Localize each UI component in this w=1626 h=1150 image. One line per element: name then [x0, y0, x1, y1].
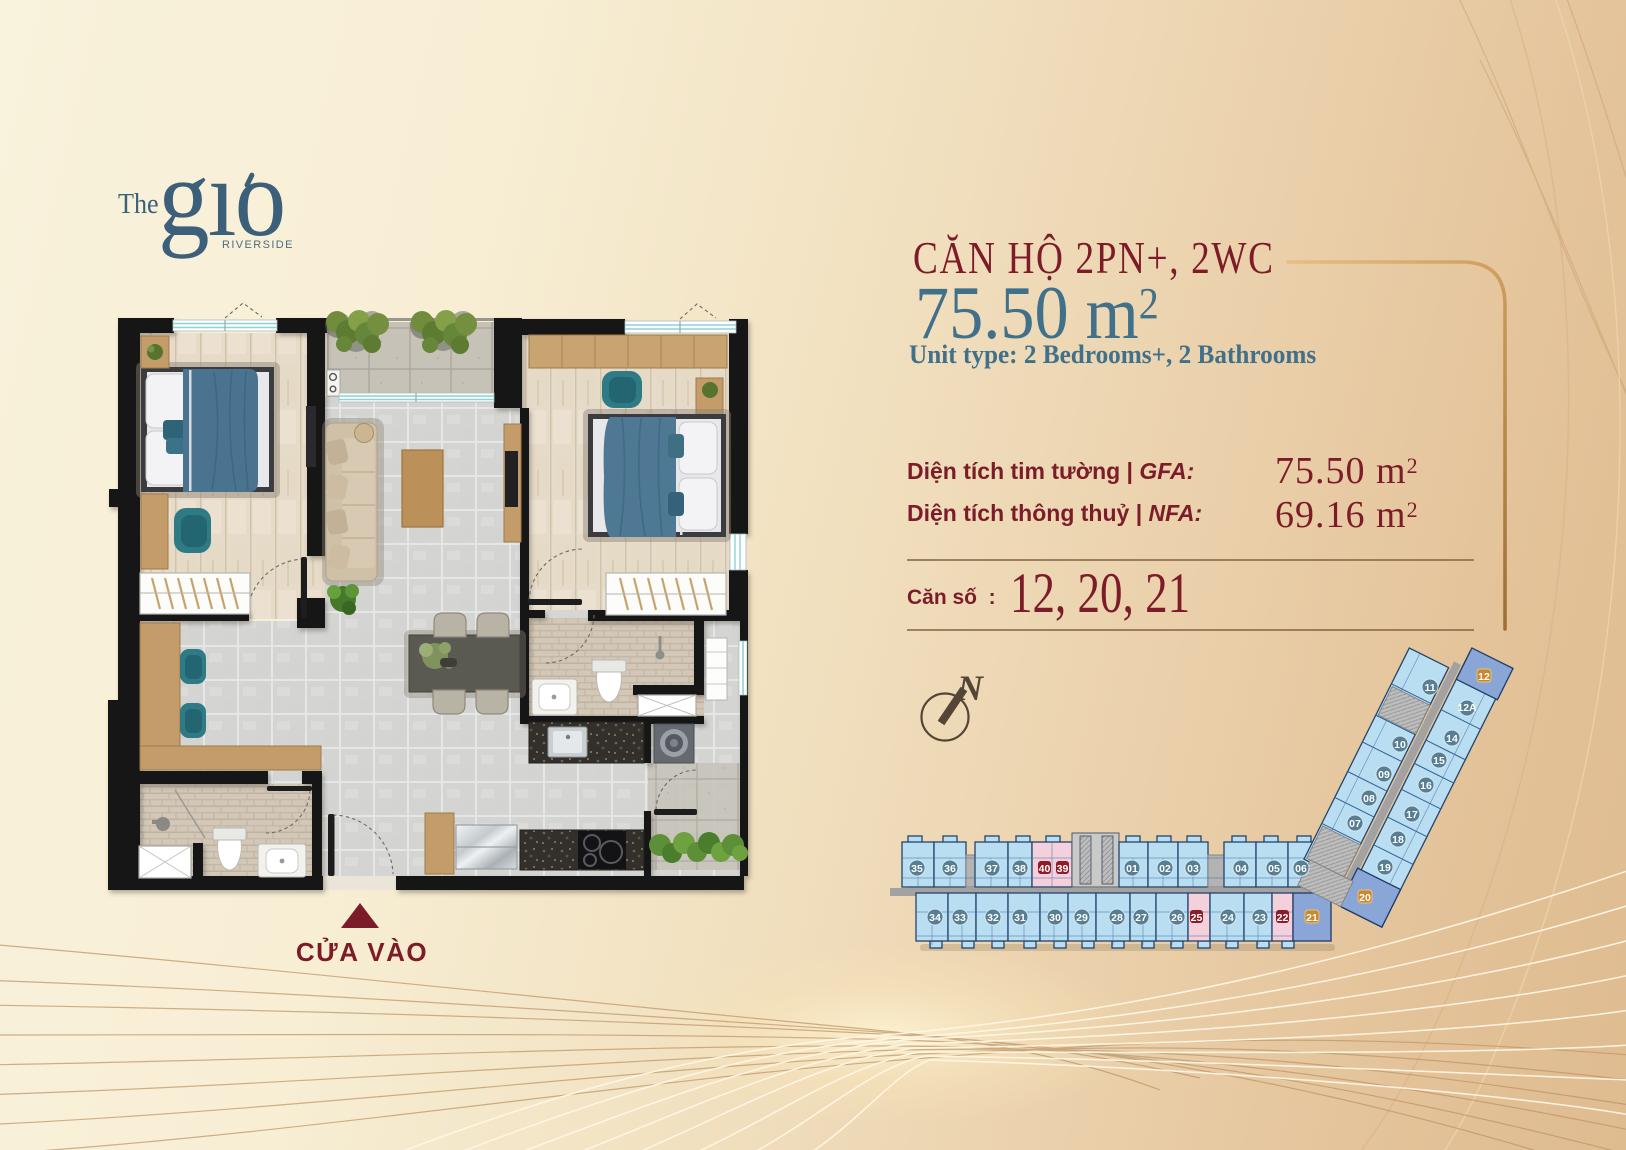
svg-text:27: 27: [1135, 912, 1147, 924]
svg-text:02: 02: [1159, 863, 1171, 875]
svg-text:01: 01: [1126, 863, 1138, 875]
svg-text:38: 38: [1014, 863, 1026, 875]
svg-text:10: 10: [1394, 739, 1406, 751]
svg-text:23: 23: [1254, 912, 1266, 924]
svg-text:09: 09: [1378, 769, 1390, 781]
svg-text:19: 19: [1379, 862, 1391, 874]
svg-text:30: 30: [1049, 912, 1061, 924]
svg-text:31: 31: [1014, 912, 1026, 924]
svg-text:05: 05: [1268, 863, 1280, 875]
svg-text:CỬA VÀO: CỬA VÀO: [296, 936, 428, 967]
svg-text:29: 29: [1076, 912, 1088, 924]
svg-text:07: 07: [1349, 818, 1361, 830]
svg-text:26: 26: [1171, 912, 1183, 924]
svg-text:12: 12: [1478, 671, 1490, 683]
svg-text:16: 16: [1420, 780, 1432, 792]
svg-text:24: 24: [1222, 912, 1234, 924]
svg-text:14: 14: [1446, 733, 1458, 745]
svg-text:06: 06: [1295, 863, 1307, 875]
svg-text:03: 03: [1187, 863, 1199, 875]
svg-text:28: 28: [1111, 912, 1123, 924]
svg-text:12A: 12A: [1457, 702, 1477, 714]
svg-text:37: 37: [986, 863, 998, 875]
svg-text:15: 15: [1433, 755, 1445, 767]
svg-text:20: 20: [1359, 892, 1371, 904]
svg-text:33: 33: [954, 912, 966, 924]
svg-text:08: 08: [1363, 793, 1375, 805]
svg-text:18: 18: [1392, 834, 1404, 846]
svg-text:04: 04: [1235, 863, 1247, 875]
svg-text:34: 34: [929, 912, 941, 924]
svg-text:11: 11: [1424, 682, 1435, 694]
svg-text:25: 25: [1191, 912, 1203, 924]
svg-text:22: 22: [1277, 912, 1289, 924]
svg-text:21: 21: [1306, 912, 1318, 924]
svg-text:35: 35: [911, 863, 923, 875]
svg-text:36: 36: [944, 863, 956, 875]
svg-text:39: 39: [1057, 863, 1069, 875]
svg-text:32: 32: [987, 912, 999, 924]
svg-text:17: 17: [1406, 809, 1418, 821]
svg-text:40: 40: [1039, 863, 1051, 875]
